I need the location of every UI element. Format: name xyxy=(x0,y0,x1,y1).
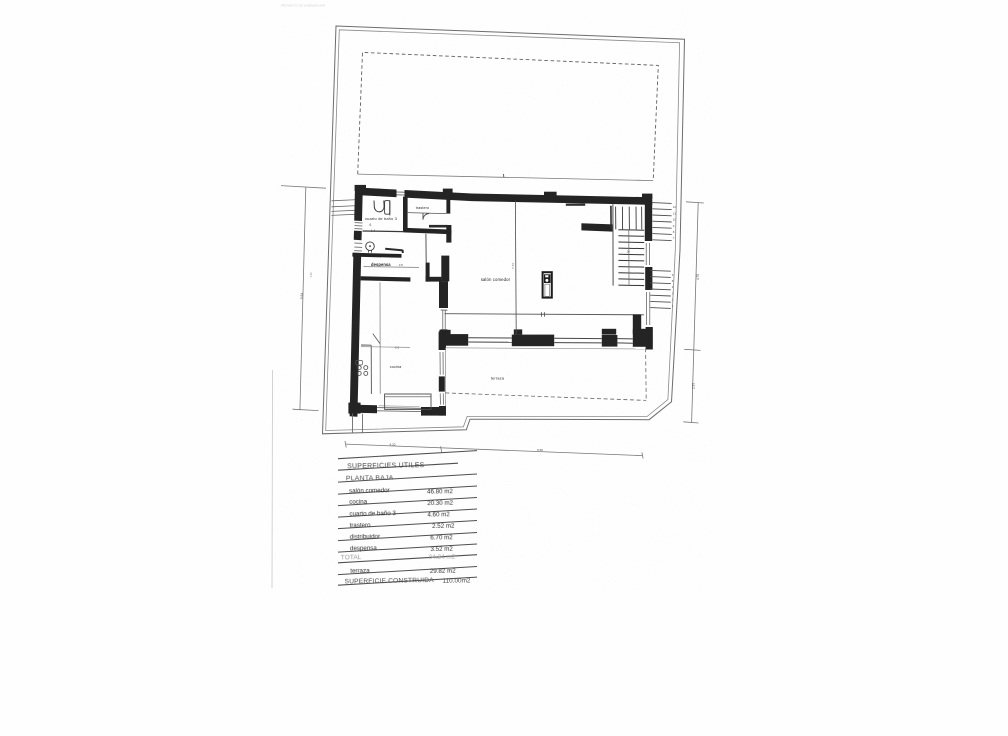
svg-text:2.35: 2.35 xyxy=(692,383,696,389)
svg-text:cocina: cocina xyxy=(390,365,402,369)
svg-text:4.70: 4.70 xyxy=(696,274,700,280)
svg-text:2.52 m2: 2.52 m2 xyxy=(432,523,455,530)
svg-text:8.50: 8.50 xyxy=(537,448,543,452)
svg-text:TOTAL: TOTAL xyxy=(341,554,362,561)
svg-text:6: 6 xyxy=(370,223,372,227)
svg-text:cocina: cocina xyxy=(349,499,368,506)
svg-text:1.40: 1.40 xyxy=(309,272,313,278)
svg-text:PLANTA BAJA: PLANTA BAJA xyxy=(346,475,394,483)
svg-text:3.5: 3.5 xyxy=(399,263,404,267)
svg-text:4.20: 4.20 xyxy=(389,442,395,446)
svg-text:despensa: despensa xyxy=(350,545,378,552)
svg-text:11: 11 xyxy=(673,211,676,215)
svg-text:1.4: 1.4 xyxy=(371,229,376,233)
svg-text:SUPERFICIES UTILES: SUPERFICIES UTILES xyxy=(347,462,425,470)
svg-text:4.60 m2: 4.60 m2 xyxy=(427,511,450,518)
svg-text:terraza: terraza xyxy=(491,376,505,381)
svg-text:SUPERFICIE CONSTRUIDA: SUPERFICIE CONSTRUIDA xyxy=(345,577,435,585)
svg-text:110.00m2: 110.00m2 xyxy=(442,577,471,584)
svg-text:29.82 m2: 29.82 m2 xyxy=(430,567,456,574)
svg-text:3.52 m2: 3.52 m2 xyxy=(430,546,453,553)
svg-text:6.70 m2: 6.70 m2 xyxy=(430,534,453,541)
svg-text:salón comedor: salón comedor xyxy=(349,487,390,495)
svg-text:9.94: 9.94 xyxy=(300,293,304,300)
svg-text:cuarto de baño 3: cuarto de baño 3 xyxy=(365,216,398,221)
svg-text:salón comedor: salón comedor xyxy=(481,277,511,282)
svg-text:cuarto de baño 3: cuarto de baño 3 xyxy=(349,510,396,518)
svg-text:7.74: 7.74 xyxy=(511,263,515,269)
svg-text:12: 12 xyxy=(673,205,677,209)
svg-text:trastero: trastero xyxy=(416,206,429,210)
svg-text:trastero: trastero xyxy=(350,522,372,529)
svg-text:terraza: terraza xyxy=(350,567,370,574)
svg-text:46.80 m2: 46.80 m2 xyxy=(427,488,453,495)
svg-text:10: 10 xyxy=(627,250,631,254)
svg-text:PROYECTO DE VIVIENDA UNIF.: PROYECTO DE VIVIENDA UNIF. xyxy=(281,4,326,8)
svg-text:10: 10 xyxy=(673,218,677,222)
svg-text:distribuidor: distribuidor xyxy=(350,533,380,540)
svg-text:84.34 m2: 84.34 m2 xyxy=(429,554,456,561)
svg-text:2.6: 2.6 xyxy=(395,345,400,349)
svg-text:20.30 m2: 20.30 m2 xyxy=(427,500,453,507)
